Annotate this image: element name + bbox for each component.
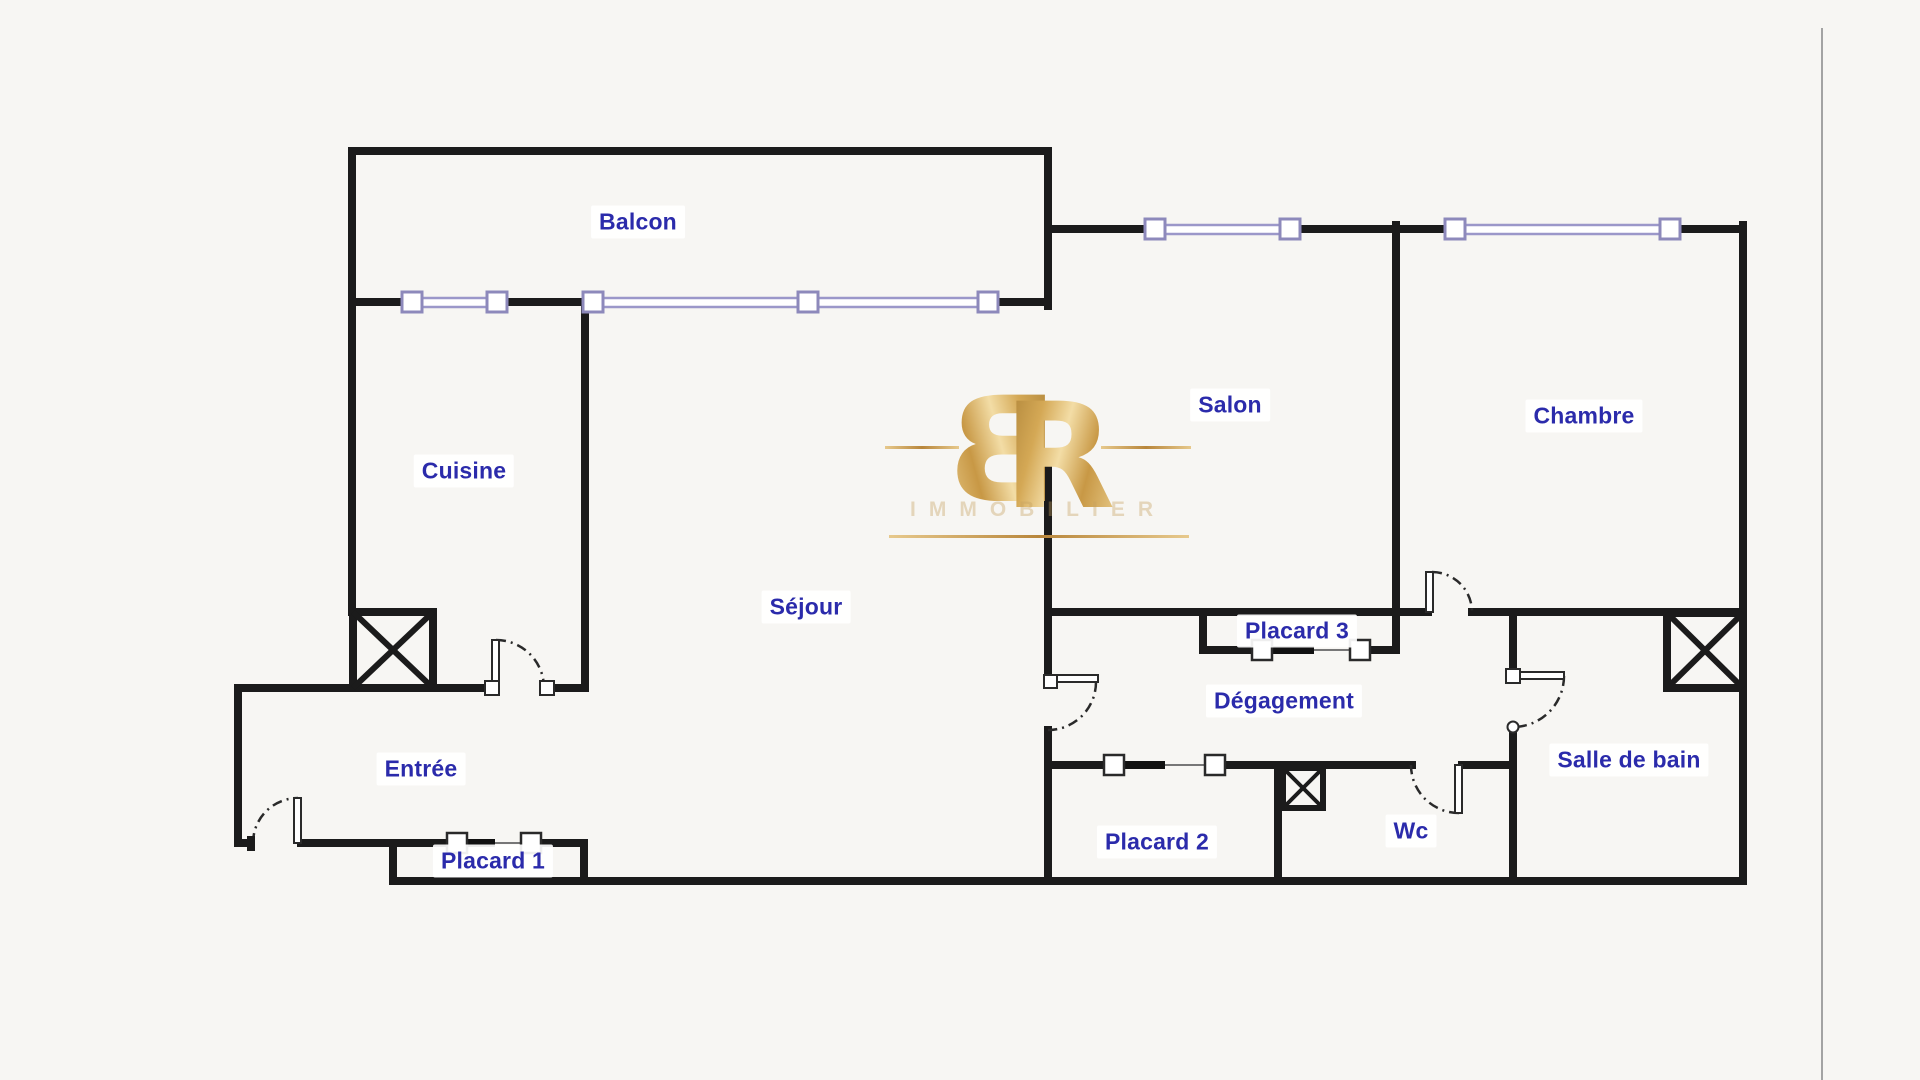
door-cuisine-icon <box>485 640 554 695</box>
brand-watermark: B R IMMOBILIER <box>885 386 1191 551</box>
room-label-placard2: Placard 2 <box>1097 826 1217 859</box>
window-cuisine-icon <box>402 292 507 312</box>
room-label-placard1: Placard 1 <box>433 845 553 878</box>
room-label-sejour: Séjour <box>762 591 851 624</box>
room-label-degagement: Dégagement <box>1206 685 1362 718</box>
watermark-line-bottom <box>889 535 1189 538</box>
watermark-tagline: IMMOBILIER <box>885 498 1191 522</box>
room-label-wc: Wc <box>1386 815 1437 848</box>
duct-box-cuisine-icon <box>353 612 433 688</box>
room-label-salon: Salon <box>1190 389 1270 422</box>
sliding-door-placard2-icon <box>1104 755 1225 775</box>
room-label-placard3: Placard 3 <box>1237 615 1357 648</box>
door-degagement-icon <box>1044 675 1098 730</box>
page-edge-line <box>1821 28 1823 1080</box>
floor-plan: B R IMMOBILIER Balcon Cuisine Séjour Sal… <box>0 0 1920 1080</box>
room-label-salle-de-bain: Salle de bain <box>1549 744 1708 777</box>
room-label-cuisine: Cuisine <box>414 455 514 488</box>
door-salle-de-bain-icon <box>1506 669 1564 733</box>
window-balcon-icon <box>583 292 998 312</box>
room-label-entree: Entrée <box>377 753 466 786</box>
duct-box-salle-de-bain-icon <box>1667 613 1743 688</box>
window-chambre-icon <box>1445 219 1680 239</box>
duct-box-wc-icon <box>1283 768 1323 808</box>
window-salon-icon <box>1145 219 1300 239</box>
door-wc-icon <box>1411 765 1462 813</box>
room-label-balcon: Balcon <box>591 206 685 239</box>
room-label-chambre: Chambre <box>1525 400 1642 433</box>
door-entree-icon <box>247 798 301 851</box>
door-chambre-icon <box>1426 572 1472 612</box>
